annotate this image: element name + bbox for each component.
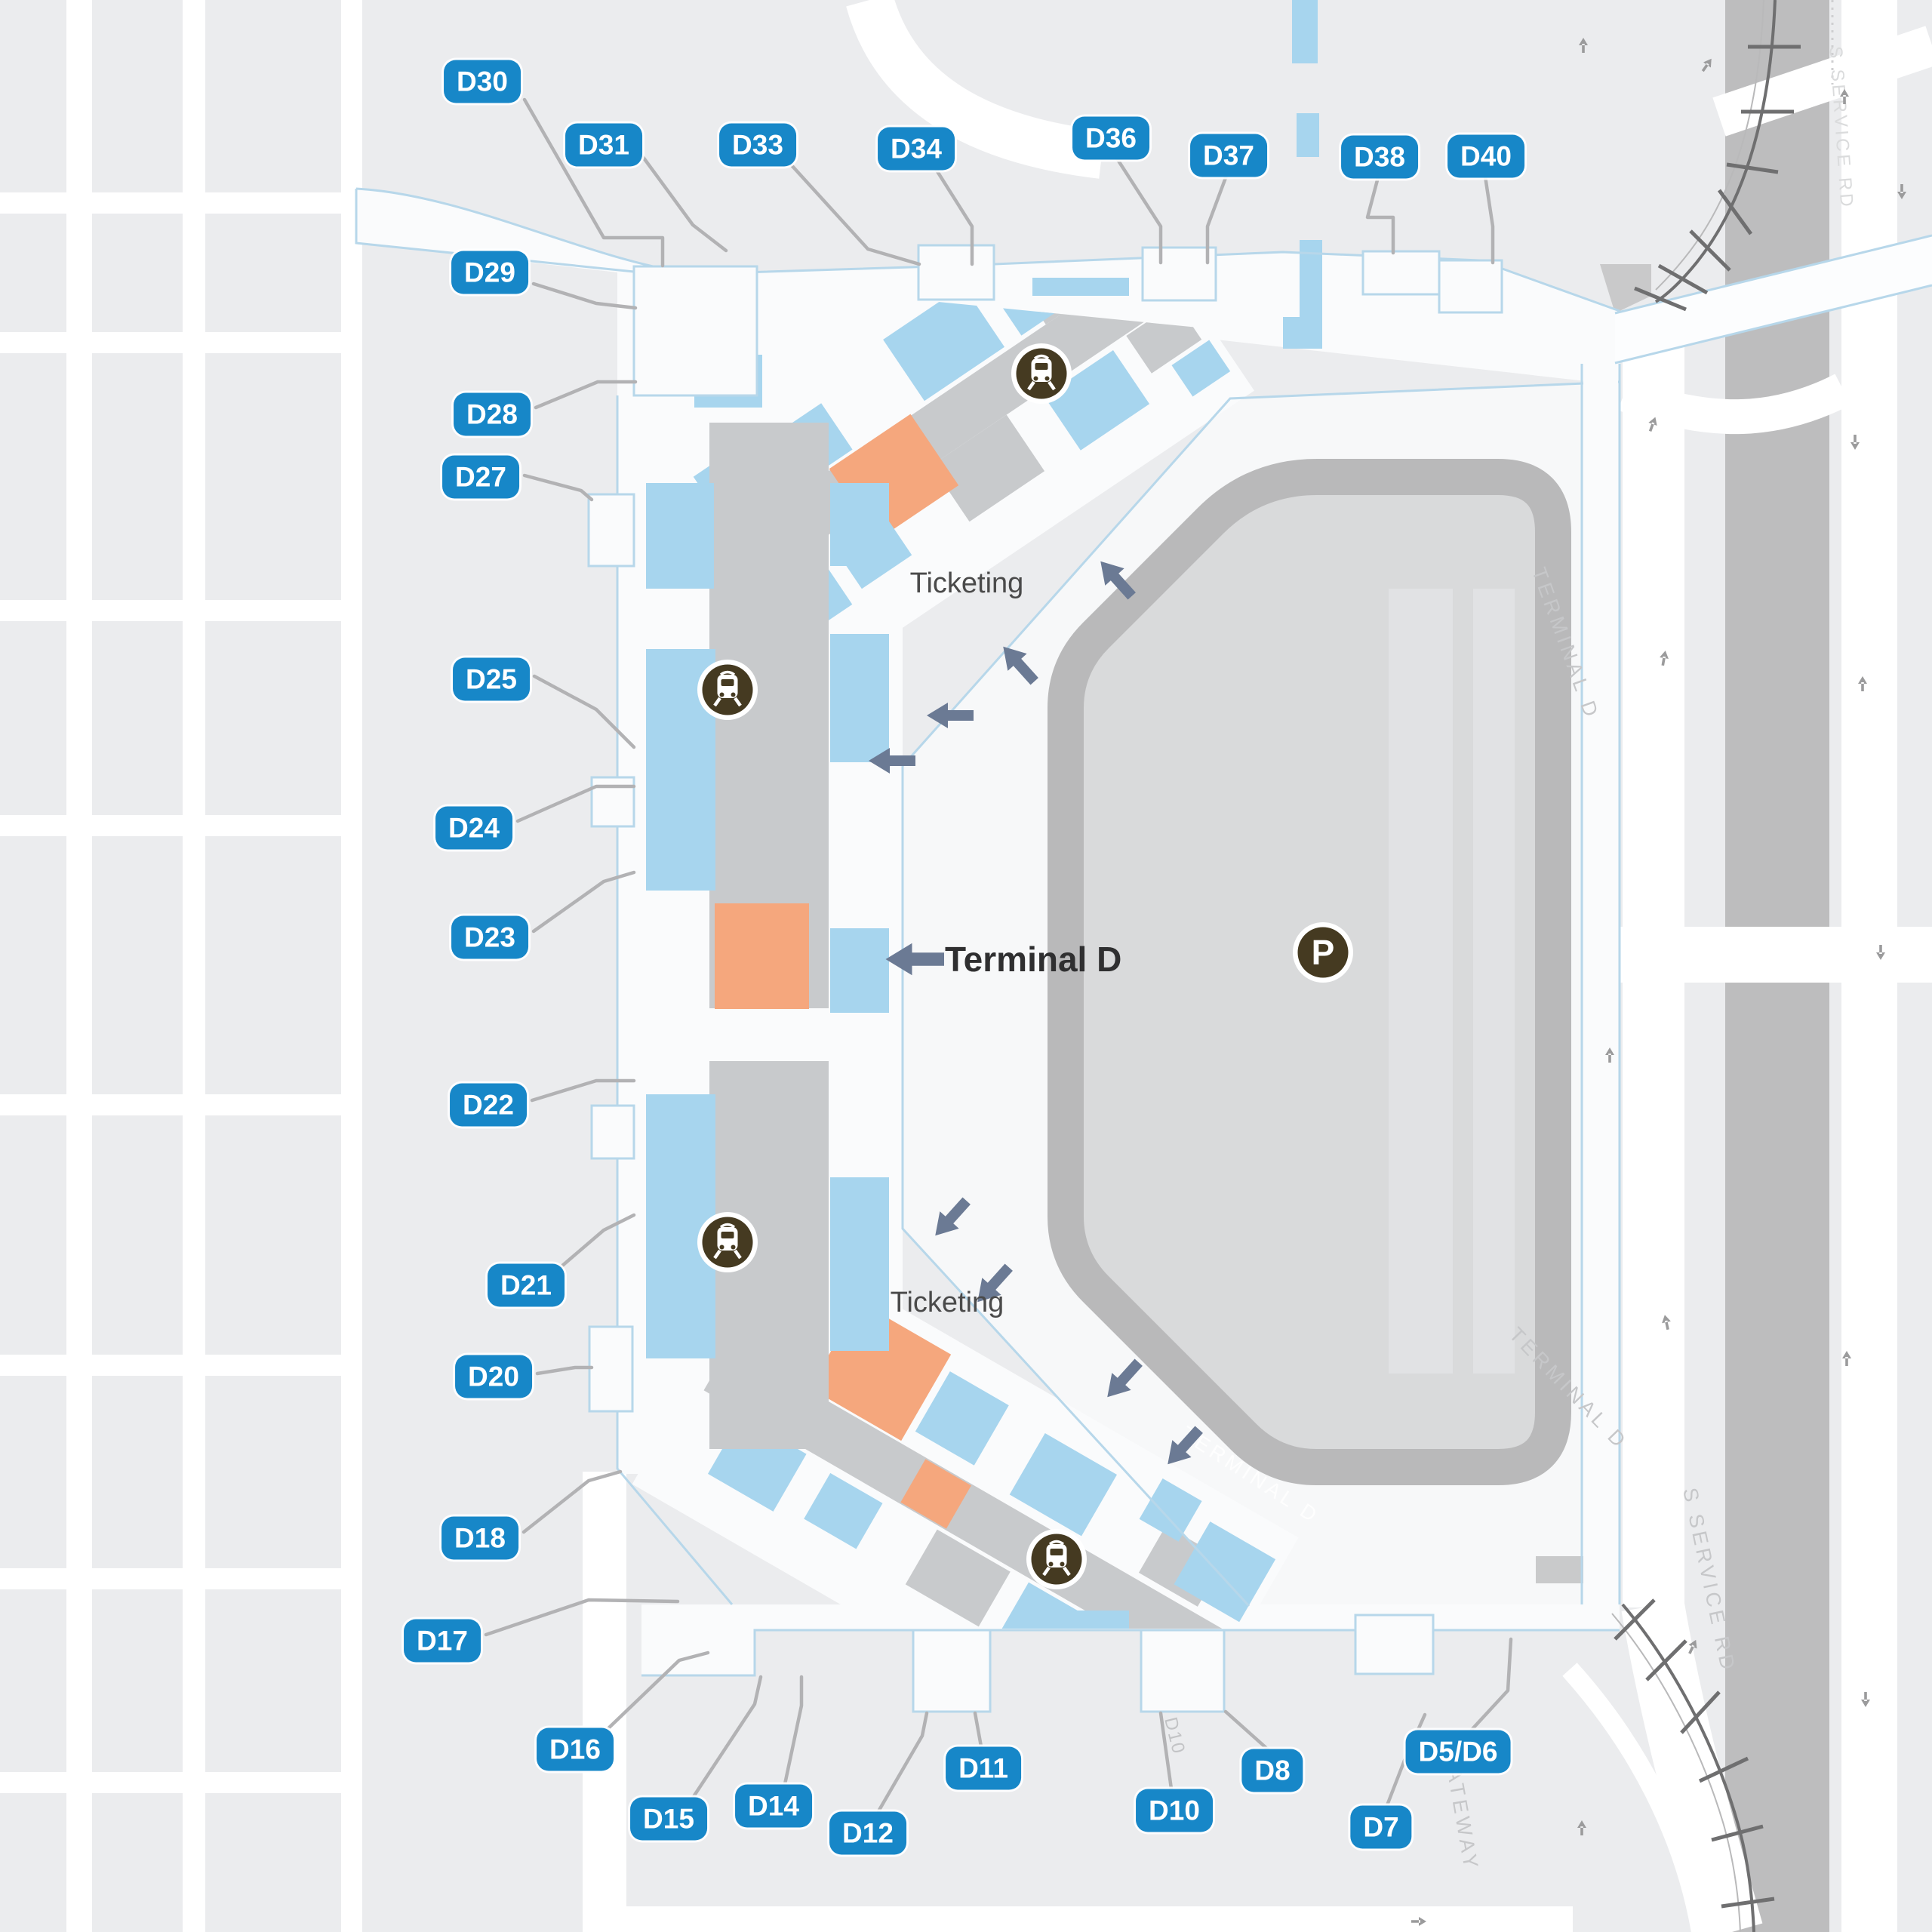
gate-badge-D29[interactable]: D29 xyxy=(451,251,528,294)
gate-badge-D36[interactable]: D36 xyxy=(1072,117,1149,160)
parking-garage xyxy=(1389,589,1515,1374)
gate-badge-D8[interactable]: D8 xyxy=(1241,1749,1303,1792)
gate-badge-D25[interactable]: D25 xyxy=(453,658,530,701)
gate-badge-D34[interactable]: D34 xyxy=(878,128,955,171)
parking-icon-letter: P xyxy=(1312,933,1335,972)
gate-badge-D31[interactable]: D31 xyxy=(565,124,642,167)
gate-badge-D11[interactable]: D11 xyxy=(946,1747,1021,1790)
train-station-icon[interactable] xyxy=(1011,343,1072,404)
gate-badge-D5-D6[interactable]: D5/D6 xyxy=(1406,1730,1511,1774)
gate-badge-D15[interactable]: D15 xyxy=(630,1798,707,1841)
gate-badge-D7[interactable]: D7 xyxy=(1350,1806,1411,1849)
train-station-icon[interactable] xyxy=(697,660,758,720)
parking-icon[interactable]: P xyxy=(1293,922,1353,983)
terminal-map: TERMINAL DTERMINAL DTERMINAL DS SERVICE … xyxy=(0,0,1932,1932)
gate-badge-D16[interactable]: D16 xyxy=(537,1728,614,1771)
gate-badge-D22[interactable]: D22 xyxy=(450,1084,527,1127)
gate-badge-D27[interactable]: D27 xyxy=(442,456,519,499)
gate-badge-D37[interactable]: D37 xyxy=(1190,134,1267,177)
ticketing-label-lower: Ticketing xyxy=(891,1287,1004,1318)
terminal-map-canvas: TERMINAL DTERMINAL DTERMINAL DS SERVICE … xyxy=(0,0,1932,1932)
train-station-icon[interactable] xyxy=(1026,1529,1087,1589)
gate-badge-D20[interactable]: D20 xyxy=(455,1355,532,1398)
gate-badge-D33[interactable]: D33 xyxy=(719,124,796,167)
terminal-d-label: Terminal D xyxy=(945,940,1121,979)
train-station-icon[interactable] xyxy=(697,1212,758,1272)
gate-badge-D24[interactable]: D24 xyxy=(435,807,512,850)
gate-badge-D17[interactable]: D17 xyxy=(404,1620,481,1663)
gate-badge-D23[interactable]: D23 xyxy=(451,916,528,959)
gate-badge-D38[interactable]: D38 xyxy=(1341,136,1418,179)
gate-badge-D28[interactable]: D28 xyxy=(454,393,531,436)
ticketing-label-upper: Ticketing xyxy=(910,568,1024,599)
gate-badge-D40[interactable]: D40 xyxy=(1447,135,1524,178)
gate-badge-D21[interactable]: D21 xyxy=(488,1264,565,1307)
gate-badge-D12[interactable]: D12 xyxy=(829,1812,906,1855)
gate-badge-D18[interactable]: D18 xyxy=(441,1517,518,1560)
gate-badge-D10[interactable]: D10 xyxy=(1136,1789,1213,1832)
gate-badge-D14[interactable]: D14 xyxy=(735,1785,812,1828)
gate-badge-D30[interactable]: D30 xyxy=(444,60,521,103)
